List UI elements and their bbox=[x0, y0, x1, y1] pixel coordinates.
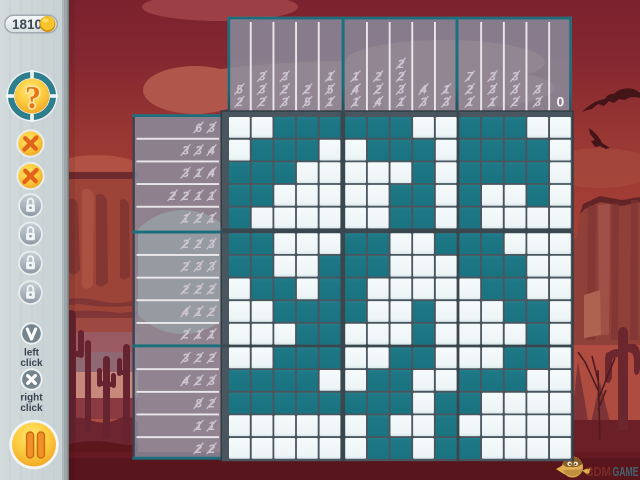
svg-text:right: right bbox=[20, 393, 43, 404]
svg-text:?: ? bbox=[25, 79, 41, 115]
svg-text:left: left bbox=[24, 348, 40, 359]
svg-text:click: click bbox=[20, 358, 43, 369]
svg-text:click: click bbox=[20, 403, 43, 414]
svg-text:3DM: 3DM bbox=[587, 464, 611, 479]
svg-text:1810: 1810 bbox=[12, 17, 42, 32]
svg-text:GAME: GAME bbox=[613, 464, 639, 479]
svg-text:0: 0 bbox=[557, 94, 565, 110]
